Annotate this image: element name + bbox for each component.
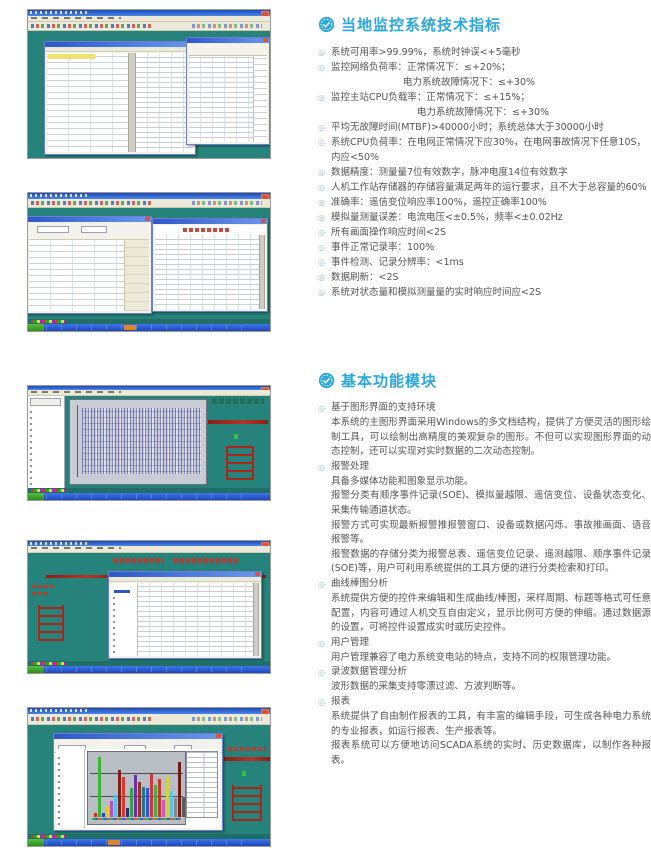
desktop-workspace (28, 31, 270, 158)
chart-bars (94, 755, 181, 817)
toolbar (28, 199, 270, 208)
tree-items (58, 753, 60, 825)
data-column (253, 56, 267, 142)
bullet-icon: ◎ (318, 270, 331, 285)
taskbar-item (108, 840, 120, 845)
child-window-table (186, 37, 270, 145)
feature-title: 曲线棒图分析 (331, 577, 388, 592)
child-window-form-table (28, 216, 152, 314)
windows-taskbar (28, 493, 270, 500)
waveform-plot (69, 399, 207, 485)
table-body (29, 223, 149, 311)
breaker-indicator (234, 434, 238, 439)
feature-item: ◎ 用户管理 用户管理兼容了电力系统变电站的特点，支持不同的权限管理功能。 (318, 636, 651, 666)
bullet-icon: ◎ (318, 636, 331, 651)
menu-items (31, 391, 121, 393)
plot-y-axis (77, 405, 78, 477)
screenshot-3-waveform (28, 386, 270, 500)
window-title-text (30, 11, 90, 14)
chart-bar (130, 788, 133, 817)
spec-text: 系统可用率>99.99%，系统时钟误<+5毫秒 (331, 45, 521, 60)
feature-title: 用户管理 (331, 636, 369, 651)
menu-items (31, 547, 121, 549)
value-table (186, 751, 218, 818)
bullet-icon: ◎ (318, 285, 331, 300)
feeder-diagram (38, 605, 64, 641)
bullet-icon: ◎ (318, 60, 331, 75)
feature-title-line: ◎ 基于图形界面的支持环境 (318, 401, 651, 416)
bullet-icon: ◎ (318, 460, 331, 475)
spec-item: ◎ 平均无故障时间(MTBF)>40000小时；系统总体大于30000小时 (318, 120, 651, 135)
feature-title-line: ◎ 报表 (318, 695, 651, 710)
feature-paragraph: 报表系统可以方便地访问SCADA系统的实时、历史数据库，以制作各种报表。 (331, 739, 651, 768)
child-window-table (44, 41, 196, 155)
toolbar-icons (192, 201, 262, 205)
taskbar-item (124, 325, 136, 330)
feature-paragraph: 系统提供了自由制作报表的工具，有丰富的编辑手段，可生成各种电力系统的专业报表，如… (331, 710, 651, 739)
feature-title-line: ◎ 录波数据管理分析 (318, 665, 651, 680)
spec-text: 监控主站CPU负载率：正常情况下：≤+15%； (331, 90, 530, 105)
spec-item: ◎ 数据精度：测量量7位有效数字，脉冲电度14位有效数字 (318, 165, 651, 180)
child-toolbar (109, 577, 261, 582)
bullet-icon: ◎ (318, 225, 331, 240)
spec-item: ◎ 系统可用率>99.99%，系统时钟误<+5毫秒 (318, 45, 651, 60)
desktop-workspace (28, 208, 270, 319)
badge-check-icon (318, 372, 335, 389)
child-window-chart (53, 733, 223, 831)
toolbar-icons (31, 24, 151, 28)
diagram-title-text (174, 558, 238, 563)
busbar-graphic (208, 420, 268, 424)
menu-items (31, 17, 121, 19)
close-icon (263, 38, 268, 42)
feature-paragraph: 波形数据的采集支持零漂过滤、方波判断等。 (331, 680, 651, 695)
chart-bar (158, 779, 161, 817)
spec-text: 电力系统故障情况下：≤+30% (417, 105, 549, 120)
section-features: 基本功能模块 ◎ 基于图形界面的支持环境 本系统的主图形界面采用Windows的… (318, 370, 651, 768)
chart-bar (94, 813, 97, 817)
feature-paragraph: 报警数据的存储分类为报警总表、遥信变位记录、遥测越限、顺序事件记录(SOE)等，… (331, 548, 651, 577)
spec-text: 准确率：遥信变位响应率100%，遥控正确率100% (331, 195, 547, 210)
spec-item: ◎ 数据刷新：<2S (318, 270, 651, 285)
data-table (155, 235, 260, 309)
tree-panel (111, 583, 138, 656)
diagram-title-text (212, 398, 264, 404)
screenshot-1-data-tables (28, 10, 270, 158)
spec-text: 监控网络负荷率：正常情况下：≤+20%； (331, 60, 511, 75)
bullet-icon: ◎ (318, 665, 331, 680)
bullet-icon: ◎ (318, 210, 331, 225)
spec-item: ◎ 模拟量测量误差：电流电压<±0.5%，频率<±0.02Hz (318, 210, 651, 225)
selected-row (48, 54, 95, 59)
chart-bar (154, 785, 157, 817)
scrollbar (253, 583, 259, 656)
chart-bar (150, 774, 153, 817)
spec-text: 事件正常记录率：100% (331, 240, 434, 255)
feeder-diagram (232, 785, 262, 821)
busbar-graphic (46, 575, 116, 578)
feeder-diagram (226, 446, 254, 480)
busbar-graphic (224, 757, 270, 761)
toolbar (28, 22, 270, 31)
child-menubar (45, 47, 195, 52)
screenshot-5-bar-chart (28, 708, 270, 846)
desktop-workspace (28, 725, 270, 834)
input-field (81, 226, 107, 233)
bullet-icon: ◎ (318, 120, 331, 135)
spec-item: ◎ 准确率：遥信变位响应率100%，遥控正确率100% (318, 195, 651, 210)
feature-list: ◎ 基于图形界面的支持环境 本系统的主图形界面采用Windows的多文档结构，提… (318, 401, 651, 768)
badge-check-icon (318, 16, 335, 33)
windows-taskbar (28, 666, 270, 673)
spec-item: ◎ 电力系统故障情况下：≤+30% (318, 75, 651, 90)
button-panel (124, 240, 149, 311)
spec-item: ◎ 事件正常记录率：100% (318, 240, 651, 255)
tree-items (113, 596, 115, 653)
feature-item: ◎ 报警处理 具备多媒体功能和图象显示功能。报警分类有顺序事件记录(SOE)、模… (318, 460, 651, 577)
bullet-icon: ◎ (318, 45, 331, 60)
diagram-title-text (228, 747, 266, 751)
page: 当地监控系统技术指标 ◎ 系统可用率>99.99%，系统时钟误<+5毫秒 ◎ 监… (0, 0, 651, 861)
toolbar (28, 714, 270, 725)
chart-bar (134, 775, 137, 817)
tree-panel (28, 396, 65, 488)
input-field (37, 226, 69, 233)
chart-bar (122, 777, 125, 817)
selected-tree-item (114, 590, 130, 593)
spec-text: 模拟量测量误差：电流电压<±0.5%，频率<±0.02Hz (331, 210, 563, 225)
child-titlebar (45, 42, 195, 47)
bullet-icon: ◎ (318, 401, 331, 416)
window-title-text (30, 542, 90, 545)
feature-paragraph: 本系统的主图形界面采用Windows的多文档结构，提供了方便灵活的图形绘制工具，… (331, 416, 651, 460)
table-title-red (183, 228, 229, 232)
chart-bar (114, 795, 117, 817)
report-body (111, 583, 259, 656)
child-titlebar (28, 217, 151, 222)
table-body (155, 225, 265, 309)
bullet-icon: ◎ (318, 90, 331, 105)
section-title: 基本功能模块 (341, 370, 437, 391)
screenshot-2-telemetry-tables (28, 193, 270, 331)
menu-bar (28, 546, 270, 553)
spec-text: 系统CPU负荷率：在电网正常情况下应30%，在电网事故情况下任意10S， (331, 135, 646, 150)
spec-list: ◎ 系统可用率>99.99%，系统时钟误<+5毫秒 ◎ 监控网络负荷率：正常情况… (318, 45, 651, 300)
spec-text: 数据刷新：<2S (331, 270, 399, 285)
chart-bar (138, 782, 141, 817)
chart-bar (102, 813, 105, 817)
feature-item: ◎ 基于图形界面的支持环境 本系统的主图形界面采用Windows的多文档结构，提… (318, 401, 651, 460)
desktop-workspace (28, 396, 270, 488)
spec-item: ◎ 系统CPU负荷率：在电网正常情况下应30%，在电网事故情况下任意10S， (318, 135, 651, 150)
spec-text: 事件检测、记录分辨率：<1ms (331, 255, 464, 270)
window-title-text (30, 194, 90, 197)
child-window-telemetry (152, 218, 268, 312)
spec-item: ◎ 系统对状态量和模拟测量量的实时响应时间应<2S (318, 285, 651, 300)
table-body (189, 45, 267, 142)
feature-paragraph: 用户管理兼容了电力系统变电站的特点，支持不同的权限管理功能。 (331, 651, 651, 666)
data-table (189, 56, 253, 142)
diagram-title-text (114, 558, 164, 563)
tree-panel (56, 749, 85, 828)
bullet-icon: ◎ (318, 577, 331, 592)
feature-item: ◎ 录波数据管理分析 波形数据的采集支持零漂过滤、方波判断等。 (318, 665, 651, 695)
spec-item: ◎ 监控网络负荷率：正常情况下：≤+20%； (318, 60, 651, 75)
feature-title: 报警处理 (331, 460, 369, 475)
bullet-icon: ◎ (318, 165, 331, 180)
spec-text: 所有画面操作响应时间<2S (331, 225, 446, 240)
windows-taskbar (28, 839, 270, 846)
toolbar-icons (192, 717, 262, 721)
bullet-icon: ◎ (318, 135, 331, 150)
table-body (47, 53, 193, 152)
scrollbar (259, 235, 265, 309)
chart-bar (118, 770, 121, 817)
chart-bar (162, 800, 165, 817)
spec-item: ◎ 事件检测、记录分辨率：<1ms (318, 255, 651, 270)
feature-title: 报表 (331, 695, 350, 710)
window-title-text (30, 709, 90, 712)
feature-item: ◎ 曲线棒图分析 系统提供方便的控件来编辑和生成曲线/棒图，采样周期、标题等格式… (318, 577, 651, 636)
desktop-workspace (28, 553, 270, 661)
feature-title-line: ◎ 报警处理 (318, 460, 651, 475)
bar-chart-plot (87, 751, 186, 825)
close-icon (255, 572, 260, 576)
close-icon (145, 217, 150, 221)
spec-text: 人机工作站存储器的存储容量满足两年的运行要求，且不大于总容量的60% (331, 180, 647, 195)
combo-box (30, 398, 61, 406)
child-titlebar (54, 734, 222, 739)
data-table (136, 53, 194, 152)
data-table (47, 53, 128, 152)
breaker-indicator (242, 771, 246, 776)
toolbar-icons (31, 717, 151, 721)
spec-text: 系统对状态量和模拟测量量的实时响应时间应<2S (331, 285, 541, 300)
toolbar-icons (31, 201, 151, 205)
diagram-label (32, 585, 54, 588)
chart-bar (182, 797, 185, 817)
tree-items (30, 408, 32, 485)
chart-bar (166, 776, 169, 817)
feature-paragraph: 具备多媒体功能和图象显示功能。 (331, 475, 651, 490)
spec-text: 内应<50% (331, 150, 379, 165)
close-icon (216, 734, 221, 738)
feature-paragraph: 报警方式可实现最新报警推报警窗口、设备或数据闪烁、事故推画面、语音报警等。 (331, 519, 651, 548)
feature-title-line: ◎ 用户管理 (318, 636, 651, 651)
bullet-icon: ◎ (318, 695, 331, 710)
child-titlebar (153, 219, 267, 224)
bullet-icon: ◎ (318, 195, 331, 210)
toolbar-icons (192, 24, 262, 28)
feature-item: ◎ 报表 系统提供了自由制作报表的工具，有丰富的编辑手段，可生成各种电力系统的专… (318, 695, 651, 768)
spec-item: ◎ 监控主站CPU负载率：正常情况下：≤+15%； (318, 90, 651, 105)
feature-title: 录波数据管理分析 (331, 665, 407, 680)
bullet-icon: ◎ (318, 180, 331, 195)
diagram-label (32, 592, 50, 595)
scrollbar (128, 53, 136, 152)
chart-x-axis (92, 818, 181, 820)
chart-panel (85, 749, 220, 828)
spec-item: ◎ 内应<50% (318, 150, 651, 165)
section-title: 当地监控系统技术指标 (341, 14, 501, 35)
spec-text: 平均无故障时间(MTBF)>40000小时；系统总体大于30000小时 (331, 120, 604, 135)
section-header: 基本功能模块 (318, 370, 651, 391)
chart-bar (178, 762, 181, 817)
chart-bar (170, 791, 173, 817)
chart-bar (110, 801, 113, 817)
spec-item: ◎ 所有画面操作响应时间<2S (318, 225, 651, 240)
bullet-icon: ◎ (318, 240, 331, 255)
child-titlebar (109, 572, 261, 577)
child-titlebar (187, 38, 269, 43)
chart-bar (146, 788, 149, 817)
spec-text: 数据精度：测量量7位有效数字，脉冲电度14位有效数字 (331, 165, 568, 180)
report-grid (138, 583, 253, 656)
close-icon (261, 219, 266, 223)
form-controls (29, 223, 149, 240)
chart-bar (142, 787, 145, 817)
section-header: 当地监控系统技术指标 (318, 14, 651, 35)
chart-bar (98, 757, 101, 817)
chart-body (56, 749, 220, 828)
section-specs: 当地监控系统技术指标 ◎ 系统可用率>99.99%，系统时钟误<+5毫秒 ◎ 监… (318, 14, 651, 300)
screenshot-4-report-grid (28, 541, 270, 673)
chart-bar (174, 798, 177, 817)
windows-taskbar (28, 324, 270, 331)
waveform-trace (82, 408, 200, 474)
spec-text: 电力系统故障情况下：≤+30% (403, 75, 535, 90)
bullet-icon: ◎ (318, 255, 331, 270)
feature-paragraph: 报警分类有顺序事件记录(SOE)、模拟量越限、遥信变位、设备状态变化、采集传输通… (331, 489, 651, 518)
spec-item: ◎ 电力系统故障情况下：≤+30% (318, 105, 651, 120)
spec-item: ◎ 人机工作站存储器的存储容量满足两年的运行要求，且不大于总容量的60% (318, 180, 651, 195)
feature-paragraph: 系统提供方便的控件来编辑和生成曲线/棒图，采样周期、标题等格式可任意配置，内容可… (331, 592, 651, 636)
data-table (29, 240, 124, 311)
feature-title-line: ◎ 曲线棒图分析 (318, 577, 651, 592)
chart-bar (106, 806, 109, 817)
feature-title: 基于图形界面的支持环境 (331, 401, 436, 416)
child-window-report (108, 571, 262, 659)
chart-bar (126, 808, 129, 817)
